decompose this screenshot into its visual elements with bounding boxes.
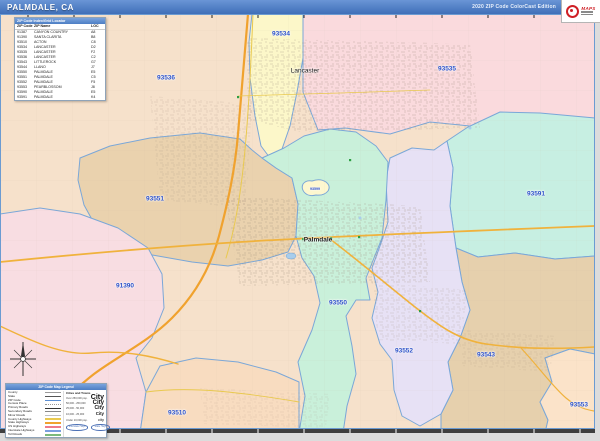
interstate-shield-icon: Interstate Hwys [66,424,88,431]
secondary-road-sample [45,411,61,412]
map-page: PALMDALE, CA 2020 ZIP Code ColorCast Edi… [0,0,600,441]
minor-road-sample [45,415,61,416]
us-highway-sample [45,426,61,428]
city-label-lancaster: Lancaster [291,68,320,75]
city-label-palmdale: Palmdale [304,237,333,244]
maps-logo: MAPS [561,0,600,23]
zip-label-93510: 93510 [168,410,186,417]
compass-rose-icon [6,340,40,378]
interstate-highway-sample [45,430,61,432]
map-legend: ZIP Code Map Legend County State ZIP Cod… [5,383,107,438]
zip-label-93550: 93550 [329,300,347,307]
toll-road-sample [45,434,61,436]
logo-swirl-icon [566,5,579,18]
zip-label-93599: 93599 [310,187,320,191]
zip-label-91390: 91390 [116,283,134,290]
zip-index-table: ZIP Code Index/Grid Locator ZIP Code ZIP… [14,17,106,101]
zip-label-93551: 93551 [146,196,164,203]
zip-label-93536: 93536 [157,75,175,82]
zip-label-93543: 93543 [477,352,495,359]
census-line-sample [45,404,61,405]
zip-label-93535: 93535 [438,66,456,73]
edition-label: 2020 ZIP Code ColorCast Edition [472,4,556,10]
page-title: PALMDALE, CA [0,3,74,12]
state-highway-shield-icon: State Hwys [91,424,109,431]
primary-road-sample [45,408,61,409]
zip-line-sample [45,400,61,401]
county-highway-sample [45,418,61,420]
state-line-sample [45,396,61,397]
legend-city-classes: Cities and Towns Over 250,000 pop.City 5… [63,391,104,437]
zip-label-93552: 93552 [395,348,413,355]
zip-label-93534: 93534 [272,31,290,38]
title-bar: PALMDALE, CA 2020 ZIP Code ColorCast Edi… [0,0,600,14]
zip-label-93553: 93553 [570,402,588,409]
logo-brand: MAPS [581,7,595,10]
state-highway-sample [45,422,61,424]
county-line-sample [45,392,61,393]
legend-line-items: County State ZIP Code Census Place Prima… [8,391,61,437]
table-row: 93591PALMDALEK4 [15,95,105,100]
zip-label-93591: 93591 [527,191,545,198]
